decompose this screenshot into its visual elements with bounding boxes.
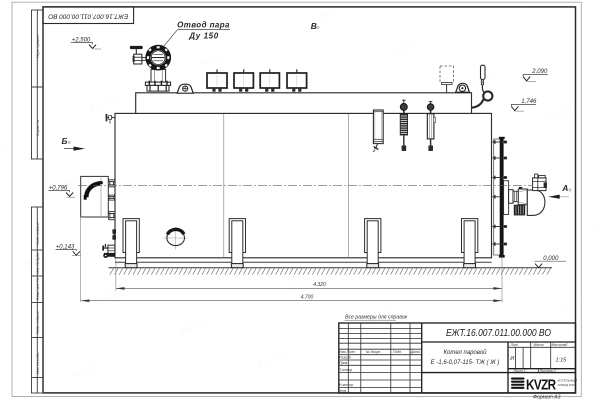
svg-text:Формат А3: Формат А3 [533,394,561,400]
svg-text:И: И [510,356,514,362]
svg-text:Отвод пара: Отвод пара [177,21,230,30]
svg-text:Дата: Дата [410,350,420,354]
svg-text:Инв. № подл.: Инв. № подл. [36,352,40,374]
svg-text:Масса: Масса [534,343,544,347]
svg-text:Взам. инв. №: Взам. инв. № [36,278,40,300]
svg-text:А: А [561,183,568,193]
svg-text:Перв. примен.: Перв. примен. [36,34,40,58]
svg-text:Подп.: Подп. [393,350,402,354]
svg-text:КОТЕЛЬНЫЙ: КОТЕЛЬНЫЙ [558,379,578,383]
svg-text:Т.контр.: Т.контр. [339,368,353,372]
svg-text:Подп. и дата: Подп. и дата [36,223,40,246]
svg-text:Утв.: Утв. [339,389,347,393]
svg-text:Листов 2: Листов 2 [539,369,556,373]
svg-text:Справ. №: Справ. № [36,120,40,136]
svg-text:1:15: 1:15 [556,358,568,364]
svg-text:Ду 150: Ду 150 [188,32,219,41]
svg-text:0,000: 0,000 [543,256,559,262]
svg-text:Масштаб: Масштаб [552,343,568,347]
svg-text:Подп. и дата: Подп. и дата [36,312,40,335]
svg-text:Разраб.: Разраб. [339,356,351,360]
svg-text:Лит.: Лит. [510,343,519,347]
svg-text:В: В [311,21,317,31]
svg-text:Б: Б [62,136,68,146]
svg-text:Котел паровой: Котел паровой [443,349,487,356]
svg-text:Все размеры для справок: Все размеры для справок [345,315,408,321]
svg-text:Инв. № дубл.: Инв. № дубл. [36,252,40,274]
svg-text:4.320: 4.320 [313,282,326,288]
svg-text:Пров.: Пров. [339,361,348,365]
svg-text:ЗАВОД РЭП: ЗАВОД РЭП [558,383,577,387]
svg-text:№ докум.: № докум. [366,350,381,354]
svg-text:Н.контр.: Н.контр. [339,383,353,387]
svg-text:4.700: 4.700 [301,294,314,300]
svg-text:KVZR: KVZR [526,377,556,394]
svg-text:Лист 1: Лист 1 [513,369,526,373]
svg-text:Изм Лист: Изм Лист [339,350,355,354]
svg-text:ЕЖТ.16.007.011.00.000 ВО: ЕЖТ.16.007.011.00.000 ВО [48,13,129,20]
svg-text:Е -1,6-0,07-115- ТЖ ( Ж ): Е -1,6-0,07-115- ТЖ ( Ж ) [431,360,500,366]
svg-text:ЕЖТ.16.007.011.00.000 ВО: ЕЖТ.16.007.011.00.000 ВО [446,328,551,339]
